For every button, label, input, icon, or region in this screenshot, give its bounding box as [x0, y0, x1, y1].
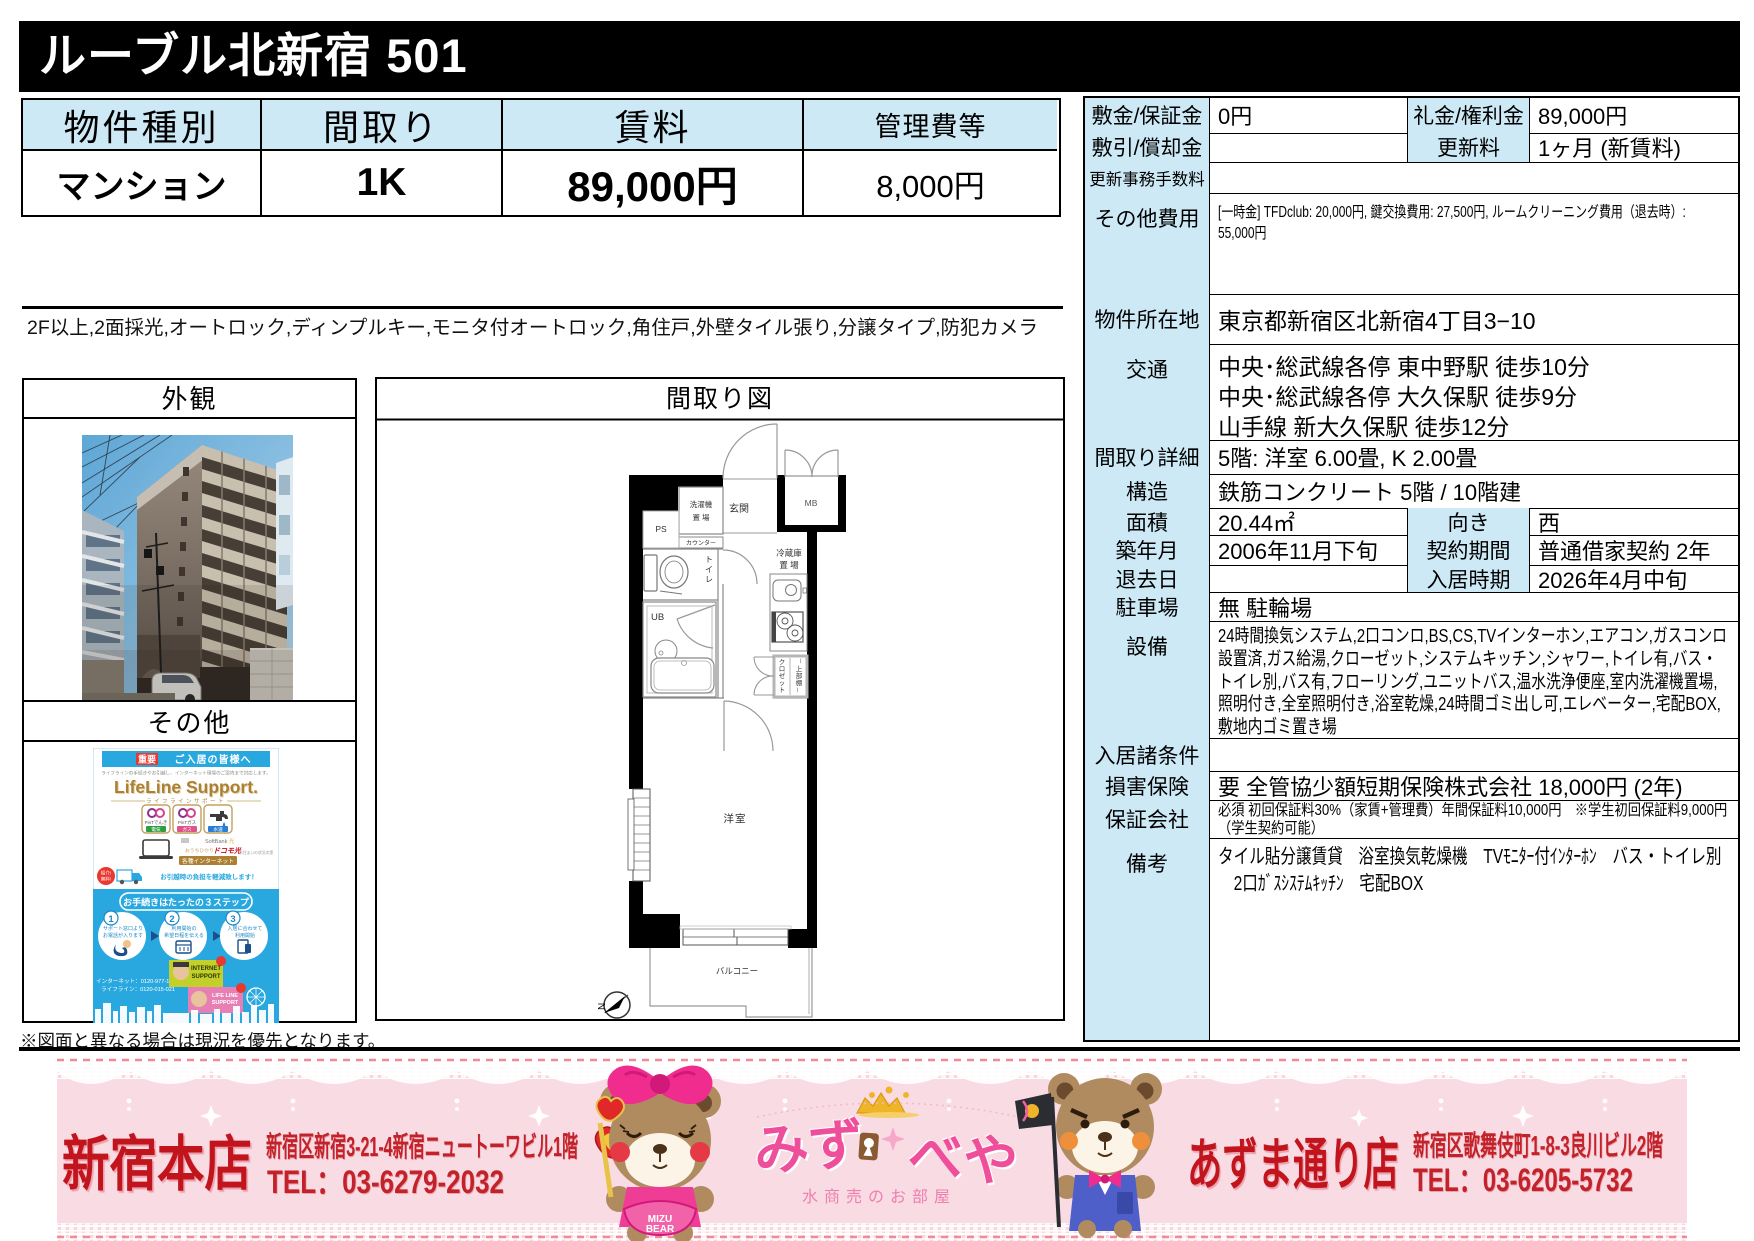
svg-text:希望日程を伝える: 希望日程を伝える: [164, 932, 204, 939]
svg-text:2: 2: [169, 914, 174, 925]
svg-text:TEL：03-6205-5732: TEL：03-6205-5732: [1413, 1162, 1633, 1198]
svg-text:ライフライン：0120-015-021: ライフライン：0120-015-021: [101, 986, 175, 993]
svg-text:部: 部: [796, 671, 803, 680]
svg-text:間取り図: 間取り図: [666, 385, 774, 413]
svg-text:お手続きはたったの３ステップ: お手続きはたったの３ステップ: [123, 897, 250, 908]
svg-text:電気: 電気: [151, 826, 161, 833]
svg-text:ッ: ッ: [779, 680, 786, 687]
svg-text:お住まいの状況次第: お住まいの状況次第: [239, 850, 273, 855]
svg-text:1: 1: [108, 914, 114, 925]
svg-text:サポート窓口より: サポート窓口より: [103, 925, 143, 932]
svg-text:LifeLine Support.: LifeLine Support.: [114, 777, 258, 797]
svg-text:PS: PS: [655, 524, 667, 534]
svg-text:紹介!: 紹介!: [101, 870, 111, 877]
svg-text:利用開始の: 利用開始の: [171, 925, 196, 932]
svg-text:ライフラインサポート: ライフラインサポート: [146, 798, 226, 805]
svg-text:INTERNET: INTERNET: [191, 966, 221, 972]
svg-text:ト: ト: [705, 555, 713, 564]
svg-text:べや: べや: [906, 1124, 1020, 1194]
svg-text:インターネット：0120-977-198: インターネット：0120-977-198: [96, 977, 176, 985]
svg-text:ご入居の皆様へ: ご入居の皆様へ: [175, 753, 252, 766]
svg-text:お引越時の負担を軽減致します！: お引越時の負担を軽減致します！: [160, 872, 258, 881]
svg-text:ゼ: ゼ: [779, 671, 786, 680]
svg-text:ク: ク: [779, 658, 786, 666]
svg-text:無料!: 無料!: [101, 876, 111, 883]
svg-text:棚: 棚: [796, 678, 803, 687]
svg-text:新宿区歌舞伎町1-8-3良川ビル2階: 新宿区歌舞伎町1-8-3良川ビル2階: [1413, 1129, 1663, 1161]
svg-text:）: ）: [796, 688, 801, 694]
svg-text:みず: みず: [752, 1113, 866, 1183]
svg-text:洋室: 洋室: [724, 812, 747, 825]
svg-text:玄関: 玄関: [729, 502, 749, 515]
svg-text:バルコニー: バルコニー: [716, 966, 758, 976]
svg-text:上: 上: [796, 664, 803, 673]
svg-text:N: N: [597, 1003, 608, 1010]
svg-text:イ: イ: [705, 565, 713, 574]
svg-text:SUPPORT: SUPPORT: [191, 974, 220, 980]
svg-text:置 場: 置 場: [692, 512, 710, 522]
svg-text:冷蔵庫: 冷蔵庫: [776, 548, 802, 558]
svg-text:新宿本店: 新宿本店: [62, 1131, 252, 1198]
svg-text:TEL：03-6279-2032: TEL：03-6279-2032: [267, 1164, 504, 1200]
svg-text:LIFE LINE: LIFE LINE: [212, 993, 238, 999]
svg-text:ライフラインの手続きやお引越し、インターネット環境のご案内ま: ライフラインの手続きやお引越し、インターネット環境のご案内まで対応します。: [101, 770, 271, 777]
svg-text:SUPPORT: SUPPORT: [212, 1000, 239, 1006]
svg-text:レ: レ: [705, 575, 713, 584]
svg-text:洗濯機: 洗濯機: [690, 499, 713, 509]
svg-text:利用開始: 利用開始: [235, 932, 255, 939]
svg-text:あずま通り店: あずま通り店: [1187, 1133, 1399, 1196]
svg-text:MB: MB: [805, 498, 818, 508]
svg-text:ドコモ光: ドコモ光: [213, 846, 242, 855]
svg-text:3: 3: [230, 914, 235, 925]
svg-text:ロ: ロ: [779, 666, 786, 673]
svg-text:重要: 重要: [138, 754, 156, 765]
svg-text:水商売のお部屋: 水商売のお部屋: [802, 1188, 956, 1206]
svg-text:各種インターネット: 各種インターネット: [182, 857, 234, 865]
svg-text:UB: UB: [651, 612, 664, 623]
svg-text:置 場: 置 場: [779, 560, 799, 570]
svg-text:おうちひかり: おうちひかり: [185, 847, 214, 854]
svg-text:水道: 水道: [213, 826, 223, 833]
svg-text:（: （: [796, 659, 801, 665]
svg-text:カウンター: カウンター: [686, 539, 716, 547]
svg-text:PinTガス: PinTガス: [178, 819, 197, 826]
svg-text:お電話が入ります: お電話が入ります: [103, 932, 143, 939]
svg-text:新宿区新宿3-21-4新宿ニュートーワビル1階: 新宿区新宿3-21-4新宿ニュートーワビル1階: [266, 1130, 578, 1162]
svg-text:ト: ト: [779, 687, 786, 694]
svg-text:入居に合わせて: 入居に合わせて: [227, 925, 262, 932]
svg-text:BEAR: BEAR: [646, 1224, 675, 1235]
svg-text:ガス: ガス: [182, 826, 192, 833]
svg-text:SoftBank 光: SoftBank 光: [205, 837, 235, 845]
